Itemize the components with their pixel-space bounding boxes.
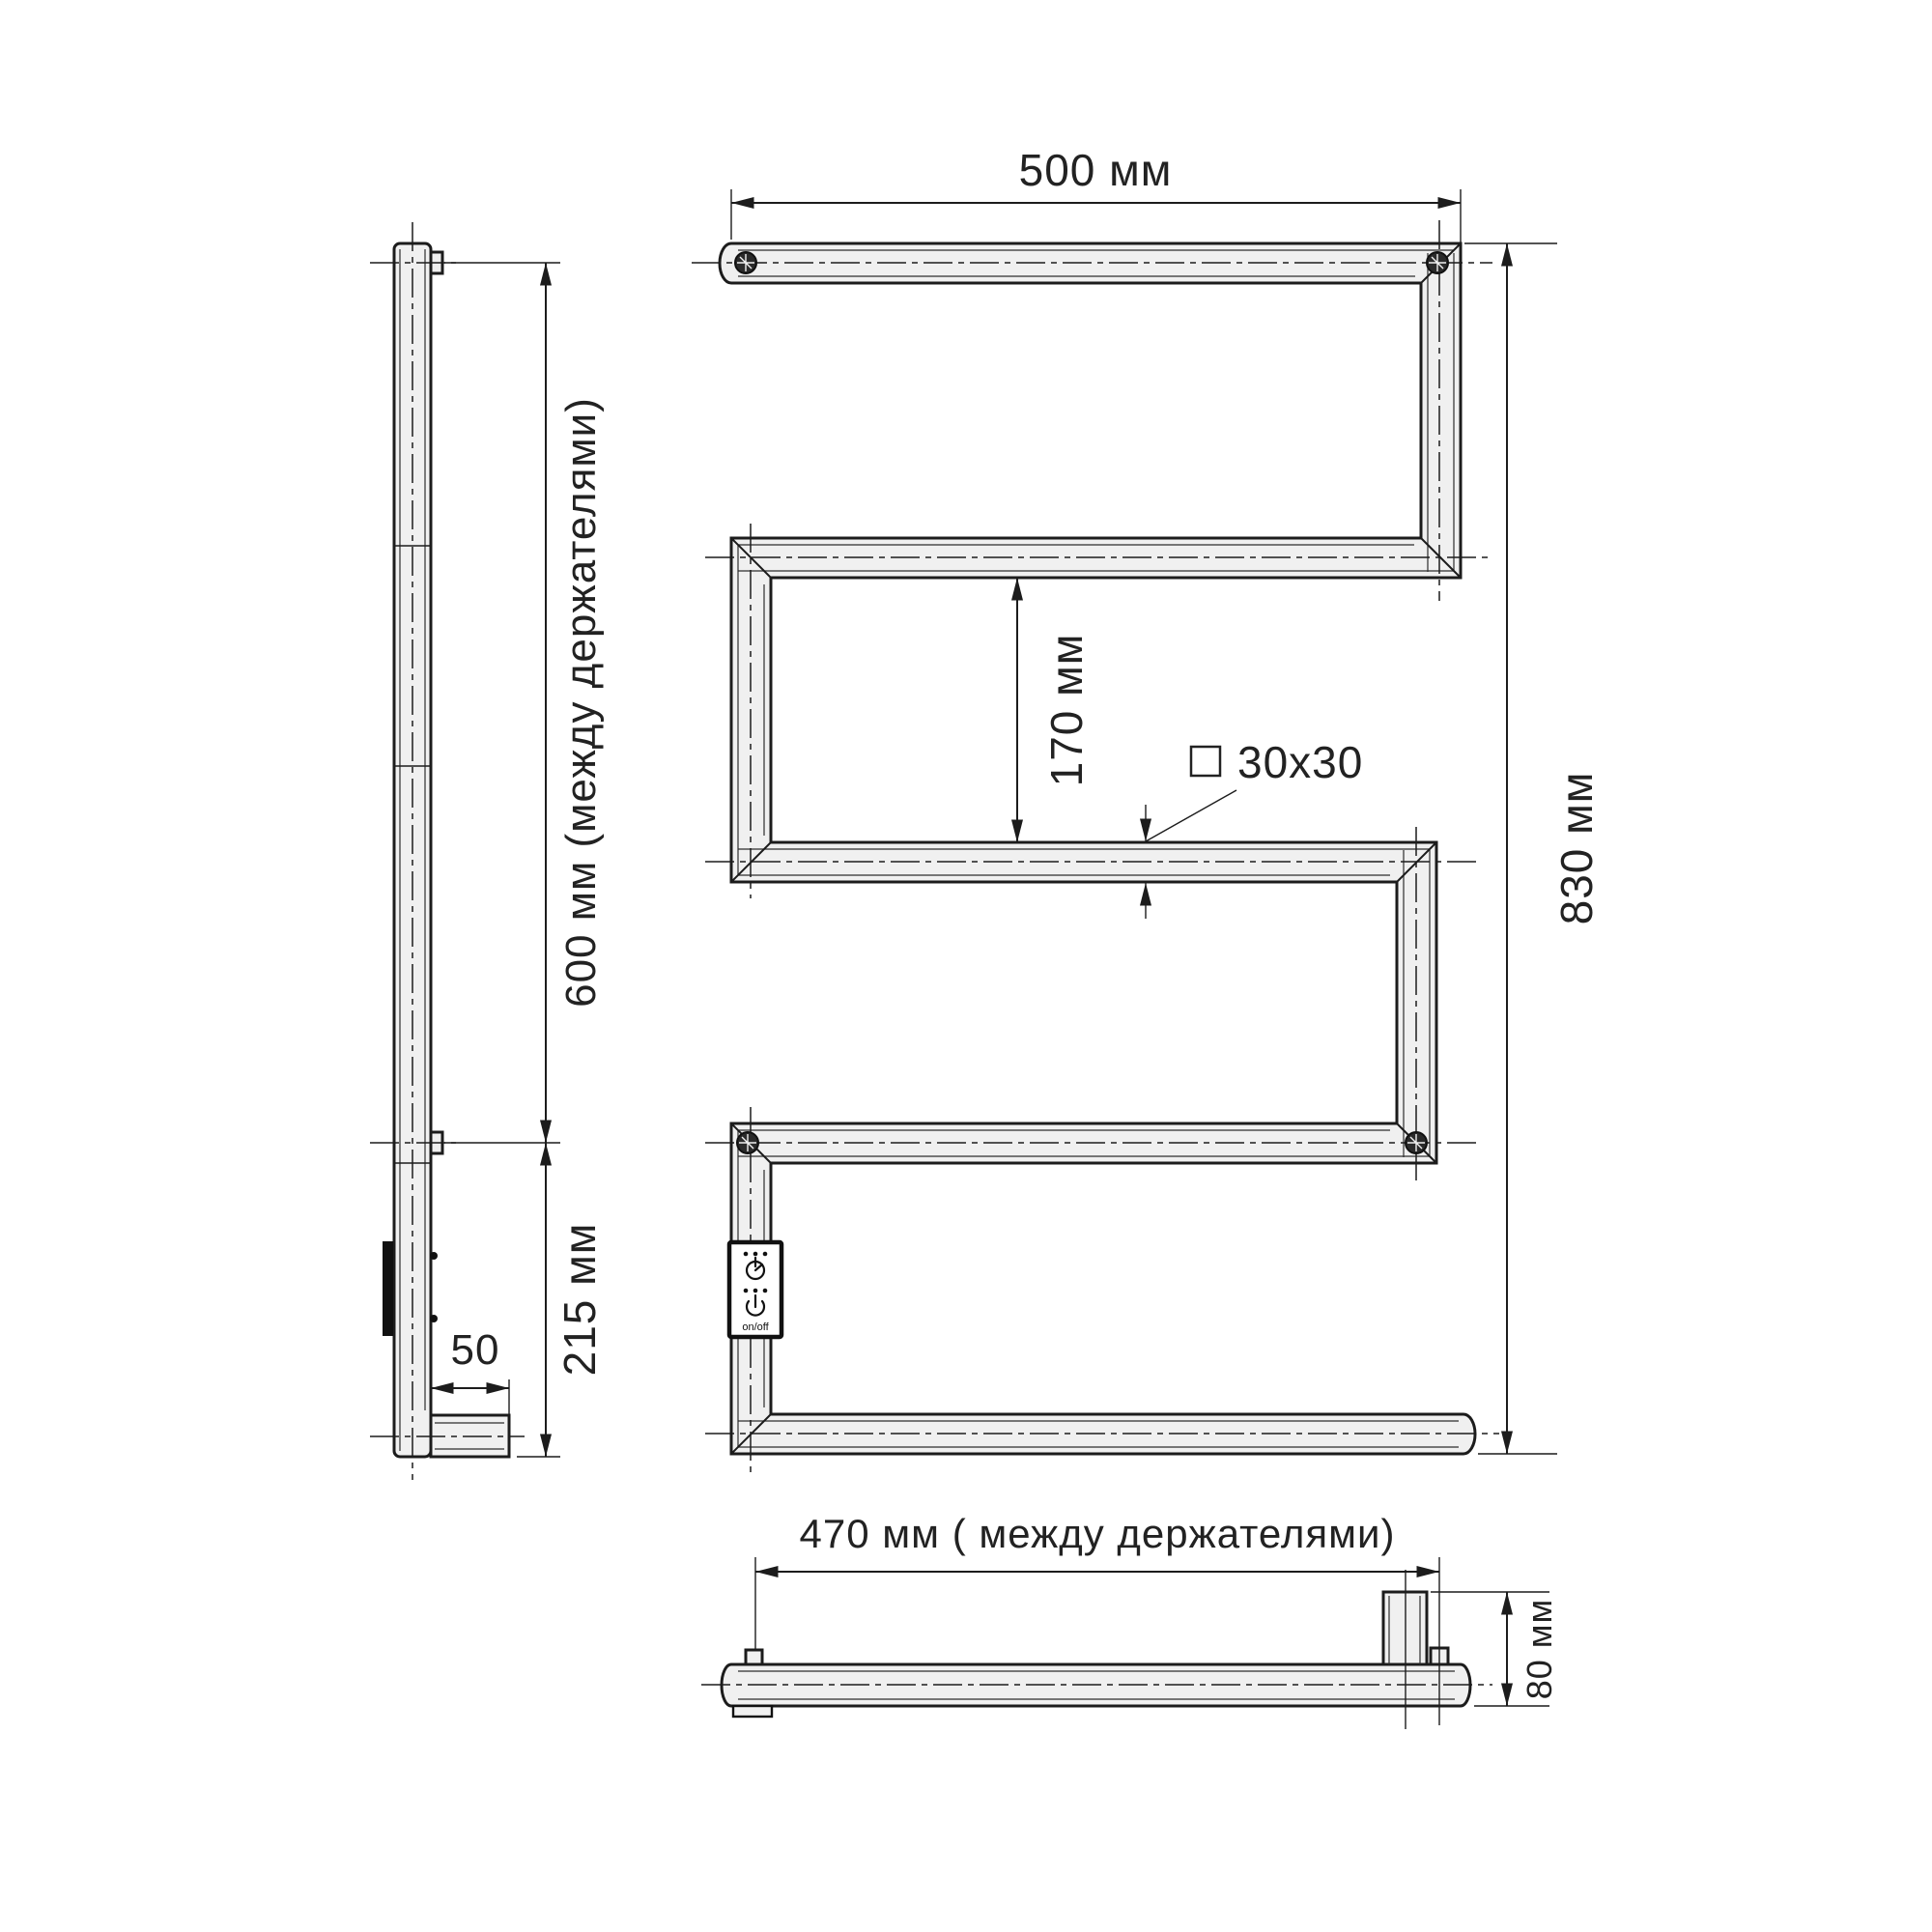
mount-screw-bottom-left [737,1132,758,1153]
dimension-500mm: 500 мм [731,145,1461,243]
dimension-215mm: 215 мм [517,1143,605,1457]
dim-label-50: 50 [451,1326,500,1374]
holder-bottom-left [746,1650,762,1664]
dim-label-830mm: 830 мм [1551,772,1602,925]
end-cap-foot [733,1706,772,1717]
heating-element-side [383,1241,393,1336]
mount-screw-bottom-right [1406,1132,1427,1153]
bottom-view [701,1570,1492,1729]
control-panel: on/off [729,1242,781,1337]
square-profile-symbol [1191,747,1220,776]
power-switch-label: on/off [742,1321,769,1333]
dim-label-170mm: 170 мм [1041,634,1092,787]
dim-label-500mm: 500 мм [1019,145,1173,195]
dim-label-215mm: 215 мм [554,1223,605,1377]
front-view: on/off [692,220,1499,1474]
panel-button-side-2 [430,1315,438,1322]
dimension-50mm: 50 [431,1326,509,1414]
dimension-170mm: 170 мм [1017,578,1092,842]
towel-rail-drawing: 600 мм (между держателями) 215 мм 50 [0,0,1932,1932]
mount-screw-top-right [1427,252,1448,273]
dim-label-600mm: 600 мм (между держателями) [557,397,605,1008]
dim-label-80mm: 80 мм [1520,1599,1559,1700]
dimension-profile-30x30: 30x30 [1146,737,1363,919]
dimension-600mm: 600 мм (между держателями) [444,263,605,1143]
dim-label-470mm: 470 мм ( между держателями) [800,1511,1396,1556]
dimension-830mm: 830 мм [1464,243,1602,1454]
panel-button-side-1 [430,1252,438,1260]
mount-screw-top-left [735,252,756,273]
technical-drawing-page: 600 мм (между держателями) 215 мм 50 [0,0,1932,1932]
side-view [370,222,525,1480]
dim-label-30x30: 30x30 [1237,737,1363,787]
